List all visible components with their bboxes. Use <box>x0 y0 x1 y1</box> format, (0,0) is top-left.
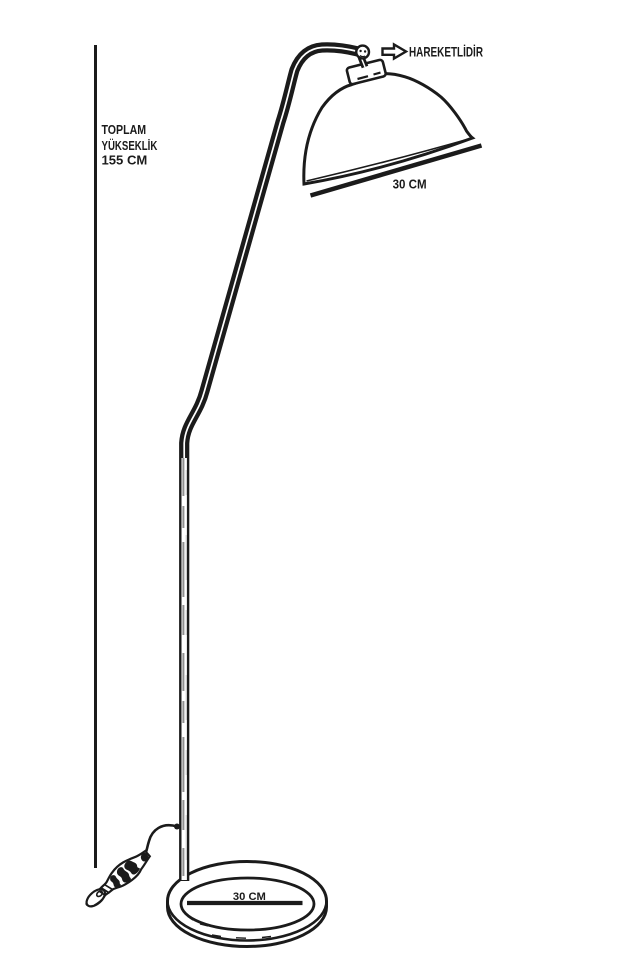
svg-text:YÜKSEKLİK: YÜKSEKLİK <box>102 138 158 153</box>
svg-text:TOPLAM: TOPLAM <box>102 122 147 137</box>
svg-text:30 CM: 30 CM <box>393 177 427 192</box>
svg-text:HAREKETLİDİR: HAREKETLİDİR <box>409 43 483 59</box>
svg-text:30 CM: 30 CM <box>233 891 266 903</box>
svg-text:155 CM: 155 CM <box>102 152 148 167</box>
